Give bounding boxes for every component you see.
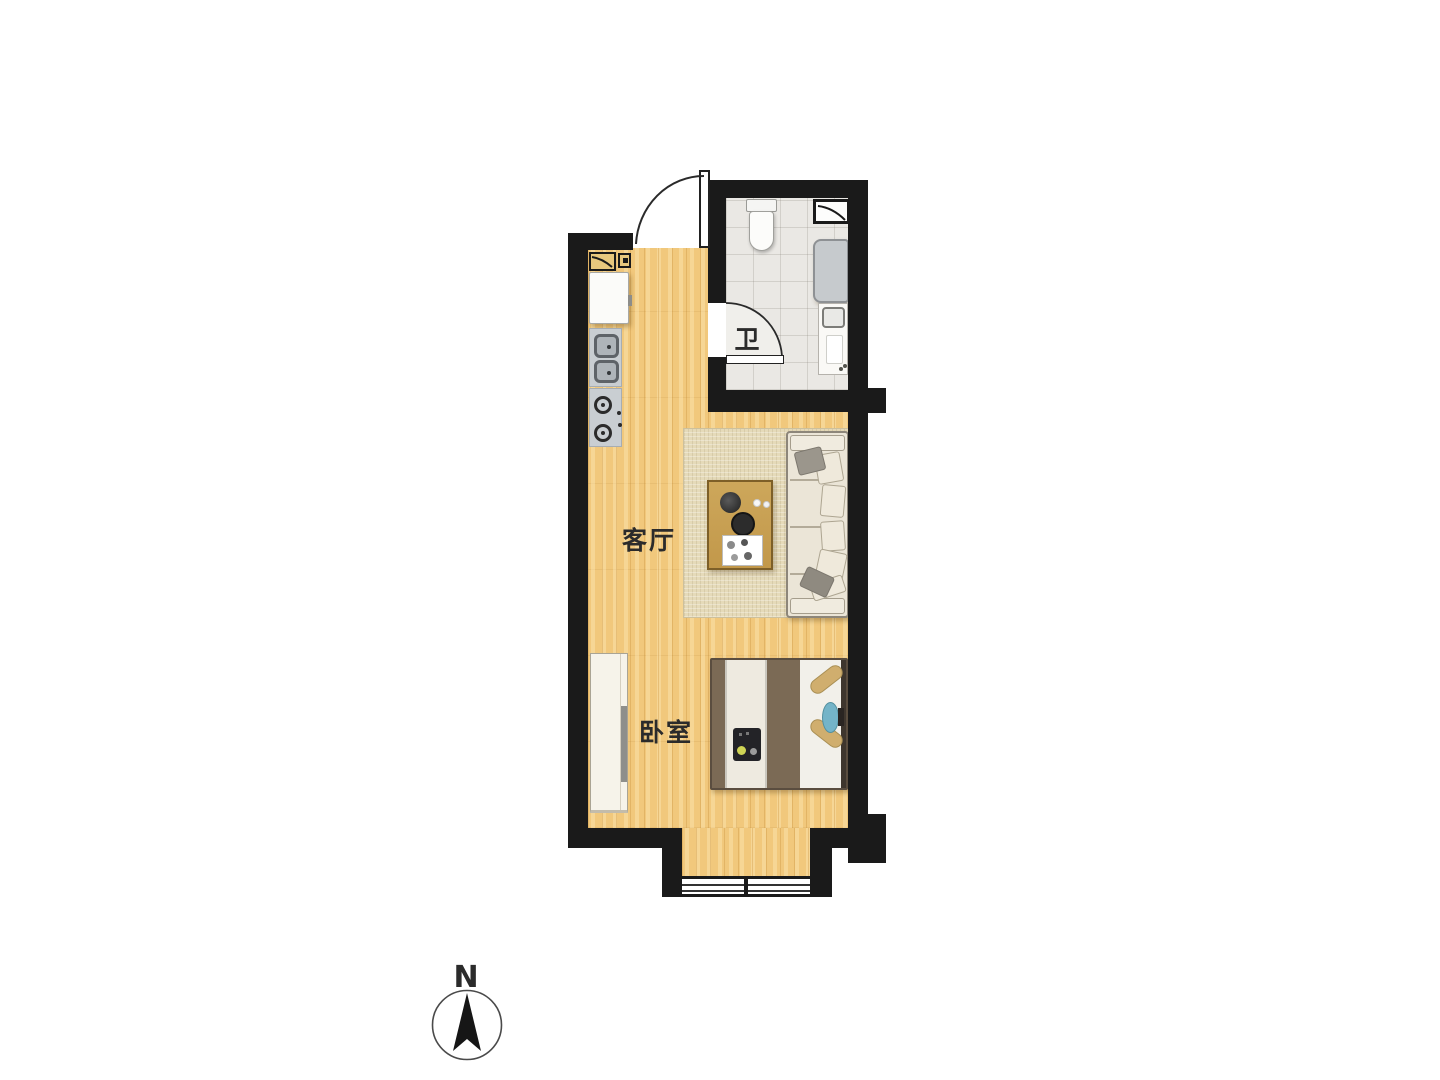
bathroom-label: 卫: [724, 320, 772, 356]
kitchen-sink-counter: [589, 328, 622, 387]
floor-bay-window: [682, 828, 810, 877]
fridge: [589, 272, 629, 324]
wardrobe: [590, 653, 628, 813]
bed-tray-icon: [733, 728, 761, 761]
floorplan-canvas: 卫 客厅 卧室 N: [0, 0, 1440, 1080]
bathroom-door-leaf: [726, 355, 784, 364]
stove-burner-icon: [594, 396, 612, 414]
table-bowl-icon: [720, 492, 741, 513]
wall-top-left: [568, 233, 633, 250]
bed-teal-pillow: [822, 702, 839, 733]
coffee-table: [707, 480, 773, 570]
kitchen-flue-small-icon: [618, 253, 631, 268]
sofa: [786, 431, 849, 618]
bed: [710, 658, 848, 790]
compass-north-label: N: [450, 960, 482, 995]
wall-bay-left-stub: [662, 828, 682, 897]
stove-burner-icon: [594, 424, 612, 442]
wall-bay-right-stub: [810, 828, 832, 897]
kitchen-flue-icon: [589, 252, 616, 271]
wall-top-bathroom: [703, 180, 868, 198]
wall-left: [568, 233, 588, 848]
washing-machine: [813, 239, 849, 303]
kitchen-stove: [589, 388, 622, 447]
wall-bottom-left: [568, 828, 662, 848]
wall-bathroom-bottom: [708, 390, 848, 412]
wall-bathroom-left-upper: [708, 180, 726, 303]
bed-runner: [725, 660, 767, 788]
entry-door-swing-icon: [630, 172, 706, 250]
bay-window: [682, 876, 810, 897]
sink-basin: [594, 360, 619, 383]
bedroom-label: 卧室: [626, 713, 706, 749]
wall-right-pier: [868, 388, 886, 413]
table-tray-icon: [722, 535, 763, 566]
wall-right: [848, 180, 868, 848]
bathroom-window-flue-icon: [813, 199, 850, 224]
living-room-label: 客厅: [609, 521, 689, 557]
bathroom-vanity: [818, 303, 848, 375]
table-bowl-icon: [731, 512, 755, 536]
vanity-sink: [822, 307, 845, 328]
toilet: [746, 199, 777, 252]
sink-basin: [594, 334, 619, 358]
compass-icon: [430, 988, 504, 1062]
